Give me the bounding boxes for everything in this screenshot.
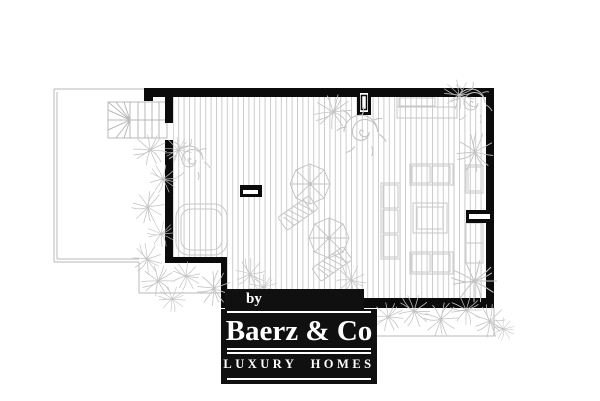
door-marker-middle — [240, 185, 262, 197]
palm-icon — [169, 259, 203, 294]
logo-rule-mid-2 — [227, 352, 371, 354]
floor-plan-canvas: by Baerz & Co LUXURY HOMES — [0, 0, 600, 401]
brand-logo: Baerz & Co LUXURY HOMES — [221, 309, 377, 384]
deck-area — [173, 97, 486, 298]
logo-by-box: by — [225, 289, 364, 310]
brand-tagline: LUXURY HOMES — [223, 357, 374, 372]
window-marker-top — [357, 89, 371, 115]
stairs-icon — [108, 102, 167, 138]
logo-rule-bottom — [227, 378, 371, 380]
logo-by-label: by — [246, 291, 262, 308]
logo-rule-top — [227, 311, 371, 313]
brand-name: Baerz & Co — [226, 316, 373, 346]
door-marker-right — [466, 210, 494, 223]
parasol-icon — [290, 164, 330, 204]
palm-icon — [138, 261, 177, 300]
logo-rule-mid-1 — [227, 348, 371, 350]
parasol-icon — [309, 218, 349, 258]
